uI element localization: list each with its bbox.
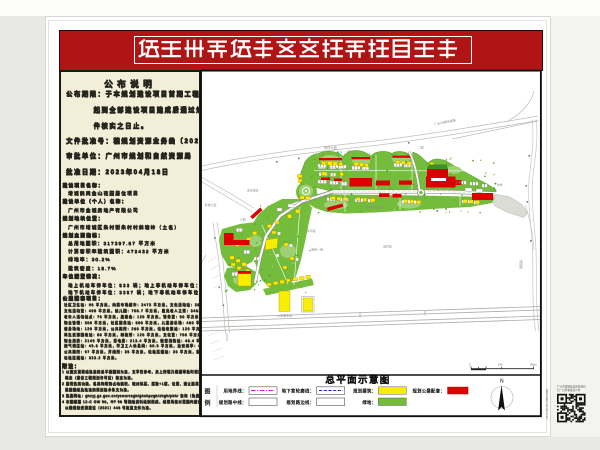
svg-text:总平面示意图: 总平面示意图 bbox=[325, 374, 390, 386]
svg-text:用地界线：: 用地界线： bbox=[223, 388, 246, 395]
svg-text:规划路: 规划路 bbox=[519, 260, 524, 269]
svg-text:绿地：: 绿地： bbox=[362, 399, 376, 405]
svg-text:规划路中线：: 规划路中线： bbox=[219, 399, 247, 406]
svg-text:金坑林场: 金坑林场 bbox=[247, 189, 258, 193]
svg-text:朱村大道: 朱村大道 bbox=[324, 145, 338, 150]
svg-text:规划公建配套：: 规划公建配套： bbox=[412, 388, 445, 395]
svg-text:规划建筑：: 规划建筑： bbox=[353, 388, 376, 395]
svg-text:中学: 中学 bbox=[497, 183, 503, 187]
svg-text:地下室轮廓线：: 地下室轮廓线： bbox=[282, 388, 315, 395]
svg-text:旧村庄: 旧村庄 bbox=[383, 244, 392, 249]
svg-text:200m: 200m bbox=[530, 362, 537, 366]
svg-text:穗规划资源业务函4684号: 穗规划资源业务函4684号 bbox=[545, 388, 549, 420]
svg-text:朱村街朱村村: 朱村街朱村村 bbox=[366, 205, 384, 210]
svg-text:图: 图 bbox=[205, 388, 211, 396]
svg-text:公交首末站: 公交首末站 bbox=[277, 313, 292, 318]
svg-text:一期: 一期 bbox=[345, 150, 351, 154]
svg-text:三期: 三期 bbox=[240, 218, 246, 222]
svg-text:金峰一街: 金峰一街 bbox=[311, 247, 323, 252]
svg-text:凤平路: 凤平路 bbox=[307, 228, 316, 233]
svg-text:例: 例 bbox=[205, 399, 211, 407]
svg-text:小学: 小学 bbox=[456, 181, 462, 185]
svg-text:100: 100 bbox=[498, 362, 503, 366]
svg-text:扫一扫查看批后公布: 扫一扫查看批后公布 bbox=[557, 388, 581, 392]
svg-text:N: N bbox=[500, 379, 504, 385]
svg-text:二期: 二期 bbox=[418, 146, 424, 150]
svg-text:规划路边线：: 规划路边线： bbox=[286, 399, 314, 406]
svg-text:广州市规划和自然资源局: 广州市规划和自然资源局 bbox=[557, 385, 586, 389]
svg-text:科技大道: 科技大道 bbox=[205, 202, 217, 207]
